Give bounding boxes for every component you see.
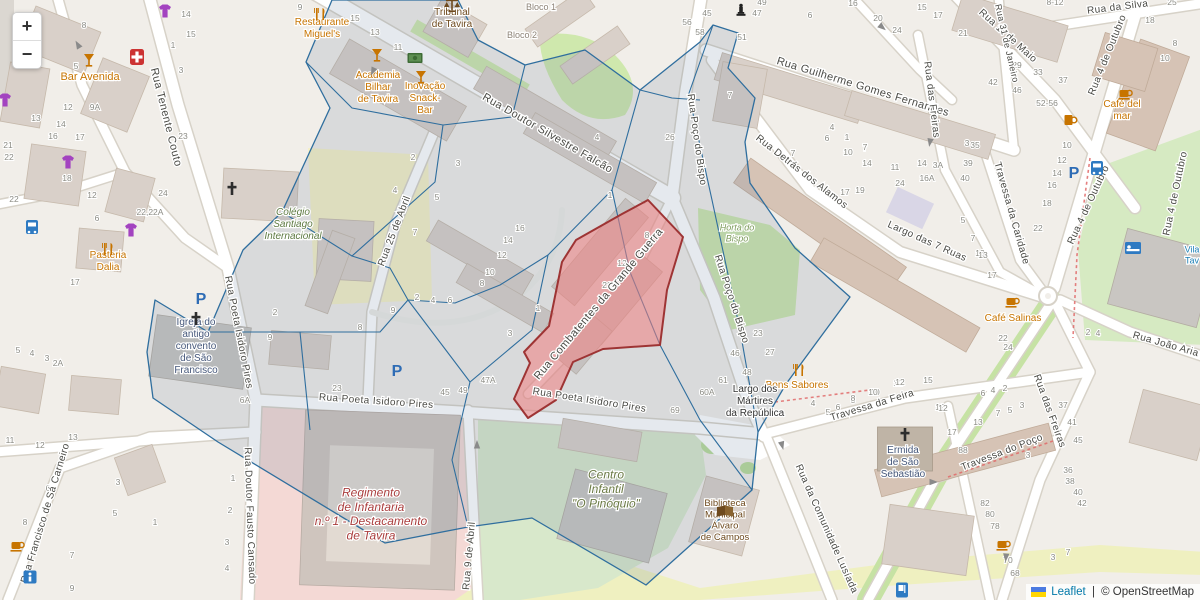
house-number: 46: [1012, 85, 1022, 95]
house-number: 23: [332, 383, 342, 393]
house-number: 7: [971, 233, 976, 243]
house-number: 37: [1058, 75, 1068, 85]
house-number: 37: [1058, 400, 1068, 410]
house-number: 35: [970, 140, 980, 150]
house-number: 11: [6, 435, 15, 445]
parking-icon: P: [392, 363, 403, 380]
house-number: 18: [62, 173, 72, 183]
house-number: 15: [186, 29, 196, 39]
house-number: 3: [508, 328, 513, 338]
place-label: Bloco 1: [526, 2, 556, 12]
house-number: 47: [752, 8, 762, 18]
house-number: 14: [181, 9, 191, 19]
house-number: 15: [350, 13, 360, 23]
house-number: 12: [938, 403, 948, 413]
house-number: 6: [981, 388, 986, 398]
map-canvas[interactable]: 14158513129A1314161721222318122422,22A61…: [0, 0, 1200, 600]
house-number: 42: [1077, 498, 1087, 508]
house-number: 5: [1008, 405, 1013, 415]
place-label: Bloco 2: [507, 30, 537, 40]
house-number: 5: [961, 215, 966, 225]
parking-icon: P: [1069, 165, 1080, 182]
house-number: 7: [863, 142, 868, 152]
house-number: 33: [1033, 67, 1043, 77]
house-number: 7: [1066, 547, 1071, 557]
house-number: 12: [63, 102, 73, 112]
bus-icon: [26, 220, 38, 234]
house-number: 12: [497, 250, 507, 260]
house-number: 9: [70, 583, 75, 593]
info-icon: [24, 571, 37, 584]
house-number: 3: [116, 477, 121, 487]
house-number: 49: [757, 0, 767, 7]
house-number: 2: [411, 152, 416, 162]
house-number: 3: [45, 353, 50, 363]
house-number: 80: [985, 509, 995, 519]
house-number: 5: [435, 192, 440, 202]
house-number: 23: [753, 328, 763, 338]
svg-text:P: P: [392, 363, 403, 380]
parking-icon: P: [196, 291, 207, 308]
attribution-bar: Leaflet | © OpenStreetMap: [1026, 584, 1200, 600]
house-number: 2: [273, 307, 278, 317]
svg-text:P: P: [1069, 165, 1080, 182]
house-number: 6A: [240, 395, 251, 405]
house-number: 6: [808, 10, 813, 20]
house-number: 82: [980, 498, 990, 508]
house-number: 41: [1067, 417, 1077, 427]
house-number: 17: [987, 270, 997, 280]
house-number: 3: [179, 65, 184, 75]
house-number: 23: [178, 131, 188, 141]
zoom-out-button[interactable]: −: [13, 41, 41, 68]
house-number: 4: [830, 122, 835, 132]
zoom-control: + −: [12, 12, 42, 69]
house-number: 1: [608, 190, 613, 200]
house-number: 12: [895, 377, 905, 387]
house-number: 51: [737, 32, 747, 42]
house-number: 5: [113, 508, 118, 518]
house-number: 21: [3, 140, 13, 150]
house-number: 16: [515, 223, 525, 233]
house-number: 13: [370, 27, 380, 37]
map-tiles: 14158513129A1314161721222318122422,22A61…: [0, 0, 1200, 600]
house-number: 40: [960, 173, 970, 183]
house-number: 3: [1026, 450, 1031, 460]
house-number: 8: [23, 517, 28, 527]
house-number: 4: [393, 185, 398, 195]
house-number: 58: [695, 27, 705, 37]
house-number: 26: [665, 132, 675, 142]
house-number: 9A: [90, 102, 101, 112]
book-icon: [717, 506, 733, 517]
money-icon: [408, 53, 423, 63]
house-number: 1: [845, 132, 850, 142]
house-number: 69: [670, 405, 680, 415]
house-number: 4: [225, 563, 230, 573]
house-number: 13: [973, 417, 983, 427]
place-label: Café Salinas: [985, 313, 1042, 324]
house-number: 12: [87, 190, 97, 200]
house-number: 22: [4, 152, 14, 162]
house-number: 14: [917, 158, 927, 168]
zoom-in-button[interactable]: +: [13, 13, 41, 41]
house-number: 36: [1063, 465, 1073, 475]
house-number: 49: [458, 385, 468, 395]
house-number: 61: [718, 375, 728, 385]
house-number: 8: [480, 278, 485, 288]
house-number: 13: [31, 113, 41, 123]
house-number: 25: [1167, 0, 1177, 7]
house-number: 13: [978, 250, 988, 260]
house-number: 24: [895, 178, 905, 188]
pharmacy-icon: [130, 49, 144, 65]
house-number: 1: [153, 517, 158, 527]
house-number: 5: [74, 61, 79, 71]
house-number: 4: [30, 348, 35, 358]
house-number: 6: [825, 133, 830, 143]
house-number: 24: [158, 188, 168, 198]
house-number: 48: [742, 367, 752, 377]
house-number: 9: [391, 305, 396, 315]
house-number: 4: [431, 295, 436, 305]
house-number: 4: [991, 385, 996, 395]
house-number: 78: [990, 521, 1000, 531]
house-number: 14: [862, 158, 872, 168]
house-number: 7: [413, 227, 418, 237]
house-number: 27: [765, 347, 775, 357]
house-number: 2: [228, 505, 233, 515]
attribution-separator: |: [1089, 586, 1098, 598]
house-number: 45: [1073, 435, 1083, 445]
house-number: 56: [682, 17, 692, 27]
house-number: 38: [1065, 476, 1075, 486]
house-number: 10: [843, 147, 853, 157]
house-number: 22: [1033, 223, 1043, 233]
fuel-icon: [896, 583, 908, 598]
house-number: 2A: [53, 358, 64, 368]
house-number: 7: [996, 408, 1001, 418]
house-number: 4: [595, 132, 600, 142]
ukraine-flag-icon: [1031, 587, 1046, 597]
house-number: 4: [811, 398, 816, 408]
house-number: 8-12: [1046, 0, 1063, 7]
house-number: 12: [1057, 155, 1067, 165]
house-number: 20: [873, 13, 883, 23]
house-number: 8: [1173, 38, 1178, 48]
house-number: 47A: [480, 375, 495, 385]
house-number: 4: [1096, 328, 1101, 338]
house-number: 10: [1062, 140, 1072, 150]
house-number: 2: [1086, 327, 1091, 337]
house-number: 3: [456, 158, 461, 168]
house-number: 21: [958, 28, 968, 38]
house-number: 3: [965, 138, 970, 148]
house-number: 88: [958, 445, 968, 455]
leaflet-link[interactable]: Leaflet: [1051, 586, 1086, 598]
house-number: 17: [947, 427, 957, 437]
house-number: 8: [851, 393, 856, 403]
house-number: 3: [225, 537, 230, 547]
house-number: 5: [16, 345, 21, 355]
house-number: 11: [891, 162, 900, 172]
hotel-icon: [1125, 242, 1141, 254]
bus-icon: [1091, 161, 1103, 175]
house-number: 45: [702, 8, 712, 18]
house-number: 8: [358, 322, 363, 332]
house-number: 6: [95, 213, 100, 223]
house-number: 9: [298, 2, 303, 12]
house-number: 52-56: [1036, 98, 1058, 108]
house-number: 46: [730, 348, 740, 358]
house-number: 68: [1010, 568, 1020, 578]
osm-credit-link[interactable]: © OpenStreetMap: [1101, 586, 1194, 598]
house-number: 22: [9, 194, 19, 204]
house-number: 3A: [933, 160, 944, 170]
house-number: 10: [868, 387, 878, 397]
house-number: 17: [75, 132, 85, 142]
house-number: 60A: [699, 387, 714, 397]
house-number: 14: [56, 119, 66, 129]
house-number: 19: [855, 185, 865, 195]
svg-text:P: P: [196, 291, 207, 308]
house-number: 6: [448, 295, 453, 305]
place-label: Igreja doantigoconventode SãoFrancisco: [174, 317, 218, 376]
house-number: 45: [440, 387, 450, 397]
house-number: 17: [933, 10, 943, 20]
house-number: 16: [848, 0, 858, 8]
house-number: 12: [35, 440, 45, 450]
house-number: 11: [394, 42, 403, 52]
place-label: VilaTav: [1185, 245, 1200, 266]
place-label: Bar Avenida: [60, 71, 120, 83]
house-number: 14: [1052, 168, 1062, 178]
house-number: 16: [48, 131, 58, 141]
house-number: 16A: [919, 173, 934, 183]
house-number: 16: [1047, 180, 1057, 190]
house-number: 15: [923, 375, 933, 385]
house-number: 18: [1145, 15, 1155, 25]
house-number: 1: [231, 473, 236, 483]
house-number: 24: [1003, 342, 1013, 352]
house-number: 1: [171, 40, 176, 50]
house-number: 18: [1042, 198, 1052, 208]
house-number: 9: [268, 332, 273, 342]
house-number: 2: [1003, 383, 1008, 393]
house-number: 42: [988, 77, 998, 87]
house-number: 3: [1020, 400, 1025, 410]
house-number: 3: [1051, 552, 1056, 562]
house-number: 24: [892, 25, 902, 35]
house-number: 7: [728, 90, 733, 100]
house-number: 39: [963, 158, 973, 168]
house-number: 1: [536, 303, 541, 313]
house-number: 2: [415, 292, 420, 302]
house-number: 15: [917, 2, 927, 12]
house-number: 40: [1073, 487, 1083, 497]
house-number: 10: [485, 267, 495, 277]
house-number: 10: [1160, 53, 1170, 63]
house-number: 22,22A: [137, 207, 164, 217]
house-number: 13: [68, 432, 78, 442]
house-number: 7: [70, 550, 75, 560]
house-number: 14: [503, 235, 513, 245]
house-number: 17: [70, 277, 80, 287]
house-number: 8: [82, 20, 87, 30]
